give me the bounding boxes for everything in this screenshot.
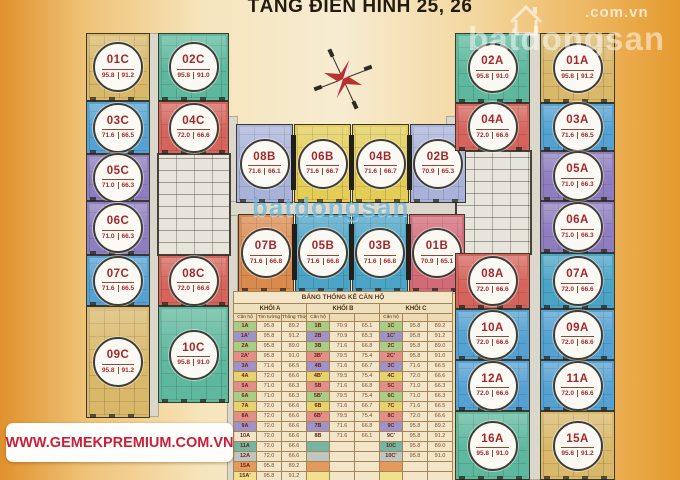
unit-number: 04B (369, 152, 392, 164)
area-value-cell: 66.3 (428, 382, 453, 392)
table-row: 2A95.889.03B71.666.82C95.889.0 (234, 342, 453, 352)
unit-id-cell: 8C (380, 412, 403, 422)
unit-id-cell: 1C (380, 322, 403, 332)
area-value-cell: 66.3 (282, 382, 307, 392)
table-row: 1A'95.891.22B70.965.31C'95.891.2 (234, 332, 453, 342)
area-gross: 95.8 (177, 72, 190, 79)
area-value-cell: 95.8 (257, 352, 282, 362)
unit-09C: 09C95.891.2 (86, 306, 150, 418)
area-value-cell: 95.8 (403, 342, 428, 352)
unit-id-cell: 9C' (380, 432, 403, 442)
area-value-cell: 66.6 (282, 422, 307, 432)
unit-id-cell: 1A (234, 322, 257, 332)
col-header: Thông Thủy (282, 314, 307, 322)
unit-id-cell: 2C (380, 342, 403, 352)
area-value-cell (403, 462, 428, 472)
unit-11A: 11A72.066.6 (540, 360, 615, 411)
table-row: 7A72.066.66B71.666.77C71.666.5 (234, 402, 453, 412)
table-row: 11A72.066.610C95.889.0 (234, 442, 453, 452)
floor-plan-canvas: TẦNG ĐIỂN HÌNH 25, 26 01C95.891.2 02C95.… (0, 0, 680, 480)
unit-03B: 03B71.666.8 (352, 214, 408, 292)
unit-badge: 11A72.066.6 (553, 361, 603, 411)
unit-badge: 08A72.066.6 (468, 256, 518, 306)
area-net: 66.8 (384, 258, 397, 265)
unit-16A: 16A95.891.0 (455, 411, 530, 480)
unit-badge: 09A72.066.6 (553, 310, 603, 360)
area-gross: 95.8 (102, 72, 115, 79)
unit-id-cell: 6B (307, 402, 330, 412)
area-net: 66.3 (122, 233, 135, 240)
unit-id-cell: 2B (307, 332, 330, 342)
area-gross: 71.6 (561, 132, 574, 139)
table-row: 3A71.666.54B71.666.73C71.666.5 (234, 362, 453, 372)
unit-id-cell: 8B (307, 432, 330, 442)
area-net: 66.3 (581, 232, 594, 239)
unit-id-cell: 3A (234, 362, 257, 372)
unit-number: 08A (481, 269, 504, 281)
area-value-cell: 66.6 (282, 412, 307, 422)
area-gross: 95.8 (476, 450, 489, 457)
area-value-cell: 66.6 (282, 372, 307, 382)
unit-10C: 10C95.891.0 (158, 306, 229, 403)
area-value-cell: 66.6 (282, 402, 307, 412)
area-value-cell: 65.3 (355, 332, 380, 342)
area-net: 91.2 (581, 73, 594, 80)
unit-number: 09A (566, 323, 589, 335)
col-header: Căn hộ (380, 314, 403, 322)
unit-number: 16A (481, 434, 504, 446)
shaft (349, 224, 354, 280)
area-value-cell: 89.2 (282, 322, 307, 332)
area-value-cell: 71.0 (403, 392, 428, 402)
watermark-domain: .com.vn (585, 4, 649, 21)
unit-id-cell: 2A (234, 342, 257, 352)
area-gross: 72.0 (177, 285, 190, 292)
area-net: 66.6 (581, 286, 594, 293)
area-value-cell: 91.2 (282, 332, 307, 342)
unit-05C: 05C71.066.3 (86, 154, 150, 201)
unit-07C: 07C71.666.5 (86, 255, 150, 306)
area-value-cell: 70.9 (330, 332, 355, 342)
area-gross: 71.6 (248, 168, 261, 175)
area-value-cell (355, 462, 380, 472)
area-net: 66.6 (581, 390, 594, 397)
block-a-header: KHỐI A (234, 304, 307, 314)
area-value-cell: 91.0 (428, 352, 453, 362)
unit-statistics-table: BẢNG THỐNG KÊ CĂN HỘ KHỐI A KHỐI B KHỐI … (233, 291, 453, 480)
unit-badge: 06B71.666.7 (298, 139, 348, 189)
area-gross: 95.8 (177, 359, 190, 366)
unit-id-cell: 5B (307, 382, 330, 392)
area-gross: 95.8 (561, 73, 574, 80)
col-header (428, 314, 453, 322)
area-net: 66.3 (122, 182, 135, 189)
area-gross: 95.8 (102, 367, 115, 374)
area-value-cell (330, 442, 355, 452)
unit-badge: 07B71.666.8 (241, 228, 291, 278)
unit-number: 07A (566, 269, 589, 281)
area-value-cell: 71.6 (330, 382, 355, 392)
area-value-cell (428, 462, 453, 472)
area-net: 66.6 (197, 285, 210, 292)
unit-badge: 09C95.891.2 (93, 337, 143, 387)
area-value-cell: 89.2 (428, 322, 453, 332)
area-value-cell: 66.8 (355, 422, 380, 432)
area-value-cell: 72.0 (257, 442, 282, 452)
block-c-header: KHỐI C (380, 304, 453, 314)
area-value-cell: 89.0 (282, 342, 307, 352)
unit-id-cell: 7B (307, 422, 330, 432)
area-value-cell: 91.2 (282, 472, 307, 480)
area-value-cell: 75.4 (355, 392, 380, 402)
unit-08A: 08A72.066.6 (455, 253, 530, 309)
area-value-cell: 71.6 (403, 362, 428, 372)
elevator-core (455, 150, 532, 255)
area-value-cell: 79.5 (330, 352, 355, 362)
watermark-center-brand: batdongsan (252, 192, 409, 223)
area-value-cell: 66.5 (428, 402, 453, 412)
unit-03C: 03C71.666.5 (86, 101, 150, 154)
unit-badge: 07A72.066.6 (553, 256, 603, 306)
area-net: 66.7 (326, 168, 339, 175)
area-value-cell: 66.5 (282, 362, 307, 372)
area-value-cell: 89.2 (428, 422, 453, 432)
unit-02C: 02C95.891.0 (158, 33, 229, 101)
area-net: 65.1 (441, 258, 454, 265)
area-value-cell: 66.7 (355, 362, 380, 372)
unit-id-cell: 4B' (307, 372, 330, 382)
area-value-cell: 72.0 (257, 372, 282, 382)
unit-id-cell (380, 472, 403, 480)
area-value-cell: 66.1 (355, 432, 380, 442)
area-value-cell: 95.8 (257, 342, 282, 352)
unit-number: 01C (107, 55, 130, 67)
area-value-cell: 66.8 (355, 342, 380, 352)
unit-09A: 09A72.066.6 (540, 309, 615, 360)
area-value-cell: 91.2 (428, 432, 453, 442)
area-net: 91.0 (496, 450, 509, 457)
unit-06C: 06C71.066.3 (86, 201, 150, 255)
table-row: 12A72.066.610C'95.891.0 (234, 452, 453, 462)
area-value-cell: 71.0 (257, 392, 282, 402)
table-row: 6A71.066.35B'79.575.46C71.066.3 (234, 392, 453, 402)
area-value-cell: 95.8 (257, 462, 282, 472)
unit-id-cell: 3B' (307, 352, 330, 362)
area-value-cell: 75.4 (355, 352, 380, 362)
unit-badge: 04A72.066.6 (468, 102, 518, 152)
area-value-cell: 66.6 (428, 372, 453, 382)
area-value-cell: 66.3 (282, 392, 307, 402)
area-net: 66.5 (581, 132, 594, 139)
area-value-cell: 71.0 (257, 382, 282, 392)
area-value-cell (330, 472, 355, 480)
area-value-cell: 71.6 (330, 402, 355, 412)
area-value-cell: 95.8 (257, 332, 282, 342)
unit-number: 06C (107, 216, 130, 228)
area-value-cell: 71.6 (330, 342, 355, 352)
unit-badge: 08B71.666.1 (240, 139, 290, 189)
unit-id-cell: 3C (380, 362, 403, 372)
compass-rose-icon (312, 48, 374, 110)
unit-number: 02B (427, 152, 450, 164)
unit-badge: 05B71.666.8 (298, 228, 348, 278)
unit-id-cell: 4A (234, 372, 257, 382)
unit-06A: 06A71.066.3 (540, 201, 615, 253)
unit-id-cell (307, 472, 330, 480)
unit-12A: 12A72.066.6 (455, 360, 530, 411)
area-gross: 71.6 (364, 258, 377, 265)
shaft (407, 135, 412, 190)
unit-id-cell: 15A' (234, 472, 257, 480)
area-value-cell: 71.6 (330, 422, 355, 432)
area-gross: 72.0 (476, 132, 489, 139)
area-value-cell: 79.5 (330, 392, 355, 402)
area-gross: 71.6 (250, 258, 263, 265)
area-value-cell: 95.8 (403, 352, 428, 362)
table-row: 2A'95.891.03B'79.575.42C'95.891.0 (234, 352, 453, 362)
area-value-cell: 91.2 (428, 332, 453, 342)
unit-id-cell (307, 442, 330, 452)
unit-id-cell: 9A (234, 422, 257, 432)
area-net: 66.6 (496, 390, 509, 397)
unit-badge: 03B71.666.8 (355, 228, 405, 278)
area-value-cell: 66.7 (355, 402, 380, 412)
area-net: 66.8 (327, 258, 340, 265)
area-value-cell (355, 442, 380, 452)
unit-number: 10A (481, 323, 504, 335)
area-gross: 72.0 (476, 286, 489, 293)
area-value-cell (403, 472, 428, 480)
unit-badge: 15A95.891.2 (553, 421, 603, 471)
area-value-cell: 95.8 (257, 322, 282, 332)
area-value-cell: 95.8 (403, 442, 428, 452)
unit-01C: 01C95.891.2 (86, 33, 150, 101)
area-value-cell: 75.4 (355, 372, 380, 382)
unit-04C: 04C72.066.6 (158, 101, 229, 154)
unit-number: 10C (182, 343, 205, 355)
unit-07B: 07B71.666.8 (238, 214, 294, 292)
unit-number: 05A (566, 164, 589, 176)
area-value-cell: 79.5 (330, 372, 355, 382)
unit-id-cell: 2A' (234, 352, 257, 362)
area-value-cell: 66.5 (428, 362, 453, 372)
unit-15A: 15A95.891.2 (540, 411, 615, 480)
unit-badge: 05C71.066.3 (93, 153, 143, 203)
table-row: 4A72.066.64B'79.575.44C72.066.6 (234, 372, 453, 382)
area-gross: 95.8 (561, 450, 574, 457)
area-value-cell: 95.8 (257, 472, 282, 480)
area-value-cell: 71.6 (330, 362, 355, 372)
area-value-cell: 72.0 (257, 422, 282, 432)
unit-number: 04A (481, 115, 504, 127)
unit-id-cell: 5C (380, 382, 403, 392)
unit-number: 03C (107, 116, 130, 128)
area-value-cell: 89.0 (428, 442, 453, 452)
area-value-cell: 71.6 (403, 402, 428, 412)
area-net: 66.1 (268, 168, 281, 175)
unit-id-cell: 4C (380, 372, 403, 382)
unit-number: 03A (566, 115, 589, 127)
website-banner: WWW.GEMEKPREMIUM.COM.VN (6, 423, 233, 462)
unit-id-cell: 11A (234, 442, 257, 452)
area-gross: 95.8 (476, 73, 489, 80)
area-value-cell (428, 472, 453, 480)
area-value-cell: 71.6 (330, 432, 355, 442)
unit-id-cell: 6C (380, 392, 403, 402)
unit-badge: 10A72.066.6 (468, 310, 518, 360)
page-title: TẦNG ĐIỂN HÌNH 25, 26 (170, 0, 550, 18)
area-value-cell: 91.0 (428, 452, 453, 462)
unit-badge: 04B71.666.7 (356, 139, 406, 189)
area-net: 91.2 (122, 367, 135, 374)
shaft (349, 135, 354, 190)
area-net: 66.5 (122, 132, 135, 139)
col-header: Tim tường (257, 314, 282, 322)
table-row: 8A72.066.66B'79.575.48C72.066.6 (234, 412, 453, 422)
area-value-cell: 95.8 (403, 322, 428, 332)
unit-number: 08B (253, 152, 276, 164)
area-value-cell: 72.0 (257, 412, 282, 422)
unit-number: 15A (566, 434, 589, 446)
area-gross: 71.6 (307, 258, 320, 265)
unit-id-cell: 15A (234, 462, 257, 472)
area-net: 66.7 (384, 168, 397, 175)
unit-id-cell: 3B (307, 342, 330, 352)
unit-number: 06B (311, 152, 334, 164)
unit-badge: 16A95.891.0 (468, 421, 518, 471)
unit-badge: 04C72.066.6 (169, 103, 219, 153)
area-net: 66.6 (496, 286, 509, 293)
unit-id-cell (307, 452, 330, 462)
unit-number: 05B (312, 241, 335, 253)
area-value-cell (330, 452, 355, 462)
unit-badge: 03C71.666.5 (93, 103, 143, 153)
unit-id-cell: 7C (380, 402, 403, 412)
unit-id-cell (307, 462, 330, 472)
elevator-core (157, 153, 231, 256)
area-value-cell: 75.4 (355, 412, 380, 422)
area-gross: 71.6 (102, 285, 115, 292)
area-value-cell: 66.6 (282, 432, 307, 442)
area-value-cell: 70.9 (330, 322, 355, 332)
unit-id-cell: 4B (307, 362, 330, 372)
area-value-cell: 71.6 (257, 362, 282, 372)
unit-badge: 06C71.066.3 (93, 203, 143, 253)
table-row: 9A72.066.67B71.666.89C95.889.2 (234, 422, 453, 432)
area-gross: 71.0 (102, 182, 115, 189)
area-gross: 72.0 (177, 132, 190, 139)
area-gross: 71.0 (102, 233, 115, 240)
area-value-cell: 72.0 (403, 372, 428, 382)
shaft (291, 135, 296, 190)
table-title: BẢNG THỐNG KÊ CĂN HỘ (234, 292, 453, 304)
unit-id-cell: 5A (234, 382, 257, 392)
area-net: 66.3 (581, 181, 594, 188)
unit-badge: 06A71.066.3 (553, 202, 603, 252)
unit-id-cell: 6B' (307, 412, 330, 422)
unit-id-cell: 12A (234, 452, 257, 462)
unit-id-cell: 1B (307, 322, 330, 332)
area-gross: 72.0 (561, 339, 574, 346)
area-value-cell: 66.6 (428, 412, 453, 422)
unit-04A: 04A72.066.6 (455, 103, 530, 151)
unit-badge: 01C95.891.2 (93, 42, 143, 92)
area-gross: 71.6 (102, 132, 115, 139)
area-value-cell: 89.2 (282, 462, 307, 472)
unit-id-cell (380, 462, 403, 472)
unit-number: 12A (481, 374, 504, 386)
area-gross: 72.0 (561, 390, 574, 397)
unit-05A: 05A71.066.3 (540, 151, 615, 201)
unit-number: 11A (567, 374, 589, 386)
unit-id-cell: 7A (234, 402, 257, 412)
unit-id-cell: 5B' (307, 392, 330, 402)
area-net: 66.5 (122, 285, 135, 292)
area-net: 91.2 (122, 72, 135, 79)
unit-id-cell: 10C' (380, 452, 403, 462)
area-value-cell: 72.0 (403, 412, 428, 422)
area-gross: 70.9 (422, 168, 435, 175)
col-header: Căn hộ (234, 314, 257, 322)
table-row: 15A95.889.2 (234, 462, 453, 472)
area-value-cell: 66.8 (355, 382, 380, 392)
unit-id-cell: 10C (380, 442, 403, 452)
unit-id-cell: 1A' (234, 332, 257, 342)
unit-badge: 12A72.066.6 (468, 361, 518, 411)
area-gross: 71.0 (561, 181, 574, 188)
area-value-cell: 95.8 (403, 452, 428, 462)
col-header (355, 314, 380, 322)
area-value-cell: 72.0 (257, 402, 282, 412)
area-value-cell: 66.6 (282, 452, 307, 462)
unit-id-cell: 8A (234, 412, 257, 422)
area-value-cell: 95.8 (403, 432, 428, 442)
unit-badge: 08C72.066.6 (169, 256, 219, 306)
area-net: 66.6 (197, 132, 210, 139)
col-header (403, 314, 428, 322)
unit-08C: 08C72.066.6 (158, 255, 229, 306)
area-net: 66.6 (581, 339, 594, 346)
area-value-cell: 95.8 (403, 332, 428, 342)
area-value-cell: 65.1 (355, 322, 380, 332)
table-row: 15A'95.891.2 (234, 472, 453, 480)
unit-number: 07C (107, 269, 130, 281)
unit-07A: 07A72.066.6 (540, 253, 615, 309)
unit-03A: 03A71.666.5 (540, 103, 615, 151)
unit-id-cell: 9C (380, 422, 403, 432)
unit-number: 09C (107, 350, 130, 362)
area-net: 91.0 (496, 73, 509, 80)
shaft (406, 224, 411, 280)
unit-badge: 07C71.666.5 (93, 256, 143, 306)
website-url: WWW.GEMEKPREMIUM.COM.VN (6, 435, 234, 451)
area-value-cell: 71.0 (403, 382, 428, 392)
unit-id-cell: 1C' (380, 332, 403, 342)
area-gross: 72.0 (476, 390, 489, 397)
unit-05B: 05B71.666.8 (295, 214, 351, 292)
unit-10A: 10A72.066.6 (455, 309, 530, 360)
area-net: 91.0 (197, 359, 210, 366)
area-net: 91.2 (581, 450, 594, 457)
area-net: 91.0 (197, 72, 210, 79)
unit-number: 01B (426, 241, 449, 253)
area-net: 66.6 (496, 339, 509, 346)
area-value-cell (330, 462, 355, 472)
shaft (292, 224, 297, 280)
unit-number: 04C (182, 116, 205, 128)
area-gross: 72.0 (561, 286, 574, 293)
unit-number: 06A (566, 215, 589, 227)
